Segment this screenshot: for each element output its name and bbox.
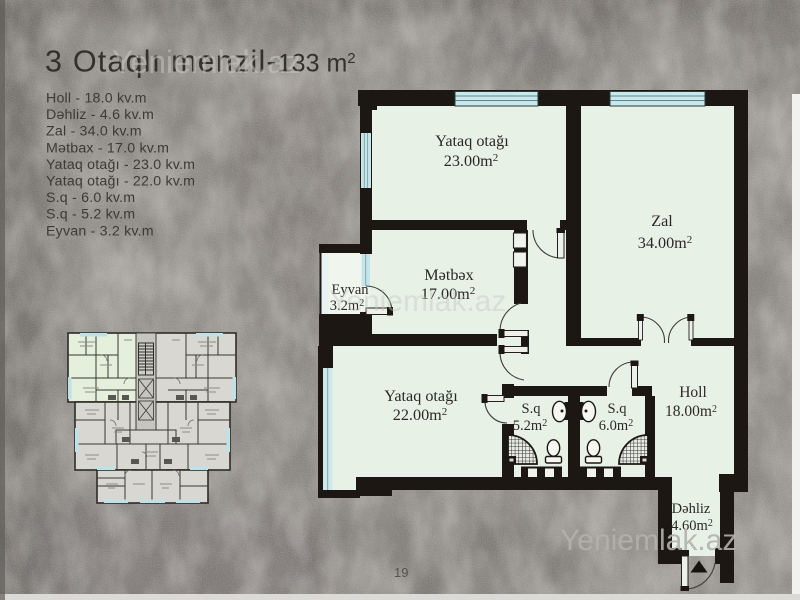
- svg-text:Yataq otağı: Yataq otağı: [384, 387, 458, 405]
- svg-text:Zal - 34.0 kv.m: Zal - 34.0 kv.m: [46, 124, 142, 140]
- svg-text:Yeniemlak.az: Yeniemlak.az: [112, 44, 301, 80]
- svg-text:Dəhliz - 4.6 kv.m: Dəhliz - 4.6 kv.m: [46, 107, 154, 123]
- svg-text:18.00m2: 18.00m2: [665, 403, 717, 420]
- svg-text:S.q: S.q: [522, 401, 541, 417]
- svg-text:Zal: Zal: [651, 212, 673, 230]
- svg-text:Mətbax - 17.0 kv.m: Mətbax - 17.0 kv.m: [46, 140, 169, 156]
- svg-text:Yeniemlak.az: Yeniemlak.az: [329, 285, 506, 318]
- svg-text:Yeniemlak.az: Yeniemlak.az: [560, 524, 737, 557]
- svg-text:5.2m2: 5.2m2: [513, 418, 547, 434]
- svg-text:23.00m2: 23.00m2: [444, 152, 499, 170]
- svg-text:S.q - 6.0 kv.m: S.q - 6.0 kv.m: [46, 190, 135, 206]
- svg-text:22.00m2: 22.00m2: [393, 406, 448, 424]
- svg-text:Holl - 18.0 kv.m: Holl - 18.0 kv.m: [46, 91, 147, 107]
- svg-text:34.00m2: 34.00m2: [638, 234, 693, 252]
- svg-text:6.0m2: 6.0m2: [599, 418, 633, 434]
- svg-text:Yataq otağı: Yataq otağı: [435, 132, 509, 150]
- svg-text:Holl: Holl: [679, 384, 707, 401]
- svg-text:19: 19: [394, 565, 408, 580]
- svg-text:Mətbəx: Mətbəx: [424, 266, 473, 284]
- svg-text:Yataq otağı - 22.0 kv.m: Yataq otağı - 22.0 kv.m: [46, 174, 195, 190]
- svg-text:S.q: S.q: [608, 401, 627, 417]
- svg-text:Yataq otağı - 23.0 kv.m: Yataq otağı - 23.0 kv.m: [46, 157, 195, 173]
- svg-text:Eyvan - 3.2 kv.m: Eyvan - 3.2 kv.m: [46, 223, 154, 239]
- svg-text:Dəhliz: Dəhliz: [672, 501, 711, 517]
- svg-text:S.q - 5.2 kv.m: S.q - 5.2 kv.m: [46, 207, 135, 223]
